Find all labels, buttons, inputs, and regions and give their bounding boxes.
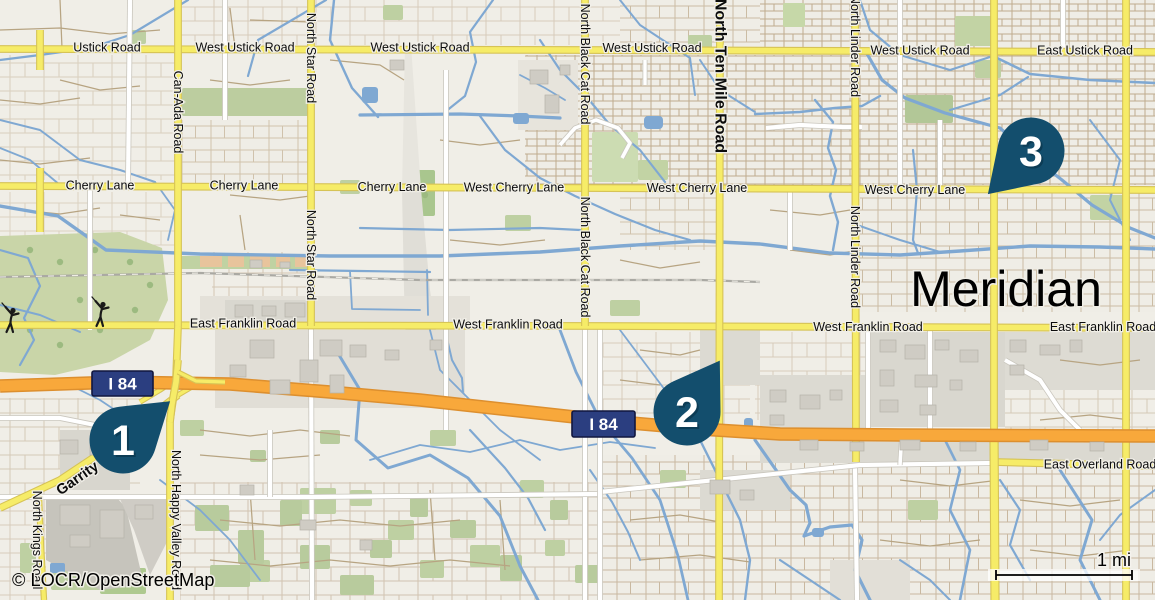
- svg-text:West Ustick Road: West Ustick Road: [370, 41, 469, 55]
- svg-text:North Ten Mile Road: North Ten Mile Road: [712, 0, 729, 153]
- svg-text:West Ustick Road: West Ustick Road: [870, 44, 969, 58]
- svg-text:North Linder Road: North Linder Road: [848, 206, 862, 308]
- svg-text:West Ustick Road: West Ustick Road: [602, 41, 701, 55]
- svg-text:1: 1: [111, 417, 135, 465]
- svg-text:North Black Cat Road: North Black Cat Road: [578, 197, 592, 318]
- svg-text:East Franklin Road: East Franklin Road: [190, 317, 296, 331]
- svg-text:West Cherry Lane: West Cherry Lane: [865, 183, 966, 197]
- svg-text:West Franklin Road: West Franklin Road: [453, 318, 563, 332]
- svg-text:Cherry Lane: Cherry Lane: [66, 179, 135, 193]
- svg-text:Meridian: Meridian: [910, 261, 1102, 317]
- svg-text:Can-Ada Road: Can-Ada Road: [171, 71, 185, 154]
- svg-text:Cherry Lane: Cherry Lane: [210, 179, 279, 193]
- svg-text:North Star Road: North Star Road: [304, 210, 318, 300]
- svg-text:North Linder Road: North Linder Road: [848, 0, 862, 97]
- svg-text:Ustick Road: Ustick Road: [73, 41, 140, 55]
- svg-text:East Franklin Road: East Franklin Road: [1050, 320, 1155, 334]
- svg-text:I 84: I 84: [108, 375, 137, 394]
- svg-text:West Cherry Lane: West Cherry Lane: [464, 181, 565, 195]
- svg-text:2: 2: [675, 389, 699, 437]
- svg-text:North Black Cat Road: North Black Cat Road: [578, 4, 592, 125]
- svg-text:© LOCR/OpenStreetMap: © LOCR/OpenStreetMap: [12, 570, 214, 590]
- svg-text:1 mi: 1 mi: [1097, 550, 1131, 570]
- svg-text:Cherry Lane: Cherry Lane: [358, 180, 427, 194]
- svg-text:West Cherry Lane: West Cherry Lane: [647, 181, 748, 195]
- svg-text:East Overland Road: East Overland Road: [1044, 458, 1155, 472]
- svg-text:West Ustick Road: West Ustick Road: [195, 41, 294, 55]
- svg-text:3: 3: [1019, 128, 1043, 176]
- svg-text:East Ustick Road: East Ustick Road: [1037, 44, 1133, 58]
- svg-text:I 84: I 84: [589, 415, 618, 434]
- svg-text:West Franklin Road: West Franklin Road: [813, 320, 923, 334]
- svg-text:North Star Road: North Star Road: [304, 13, 318, 103]
